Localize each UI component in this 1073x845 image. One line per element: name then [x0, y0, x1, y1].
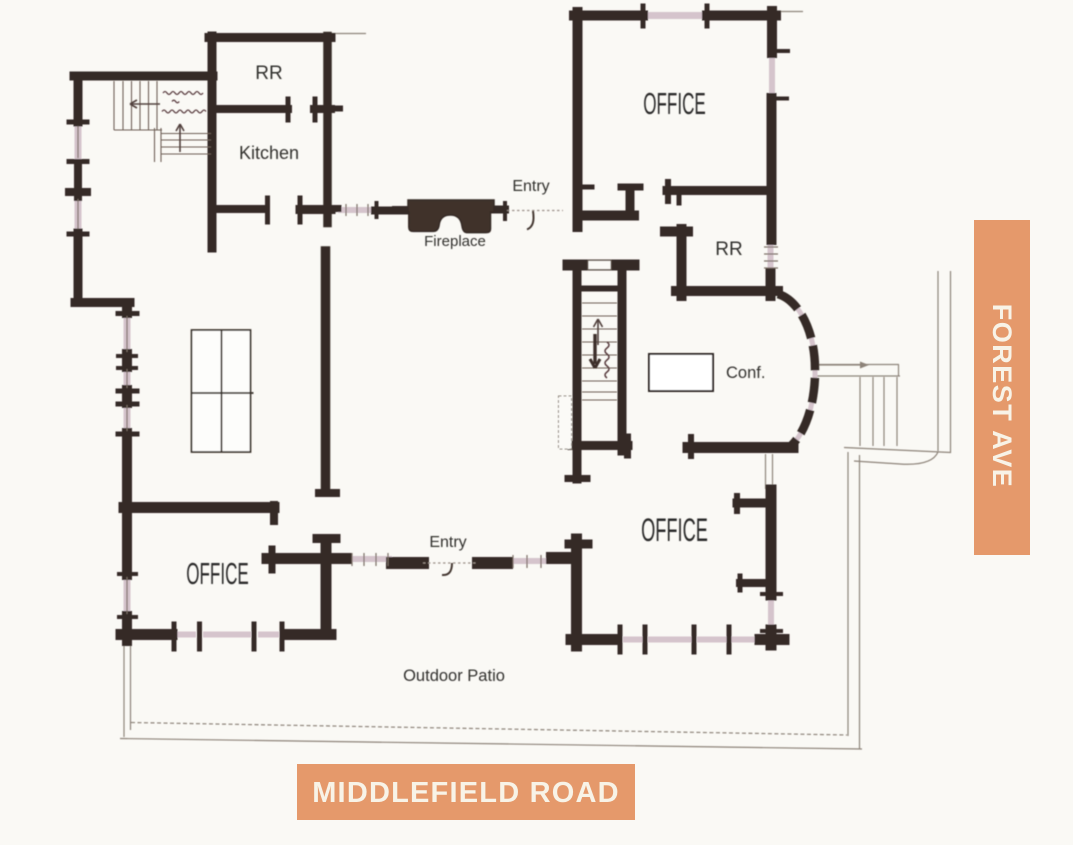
svg-text:Conf.: Conf. — [726, 364, 765, 382]
svg-text:OFFICE: OFFICE — [186, 557, 248, 592]
svg-text:Entry: Entry — [429, 534, 466, 551]
svg-text:Fireplace: Fireplace — [424, 233, 486, 250]
svg-text:Outdoor Patio: Outdoor Patio — [403, 667, 505, 685]
svg-text:RR: RR — [255, 63, 282, 84]
svg-text:MIDDLEFIELD ROAD: MIDDLEFIELD ROAD — [312, 777, 620, 809]
svg-text:Entry: Entry — [512, 178, 549, 195]
svg-text:RR: RR — [715, 239, 742, 260]
svg-text:OFFICE: OFFICE — [641, 512, 708, 549]
svg-text:OFFICE: OFFICE — [643, 87, 705, 122]
svg-text:Kitchen: Kitchen — [239, 143, 299, 163]
svg-text:FOREST AVE: FOREST AVE — [987, 304, 1017, 489]
